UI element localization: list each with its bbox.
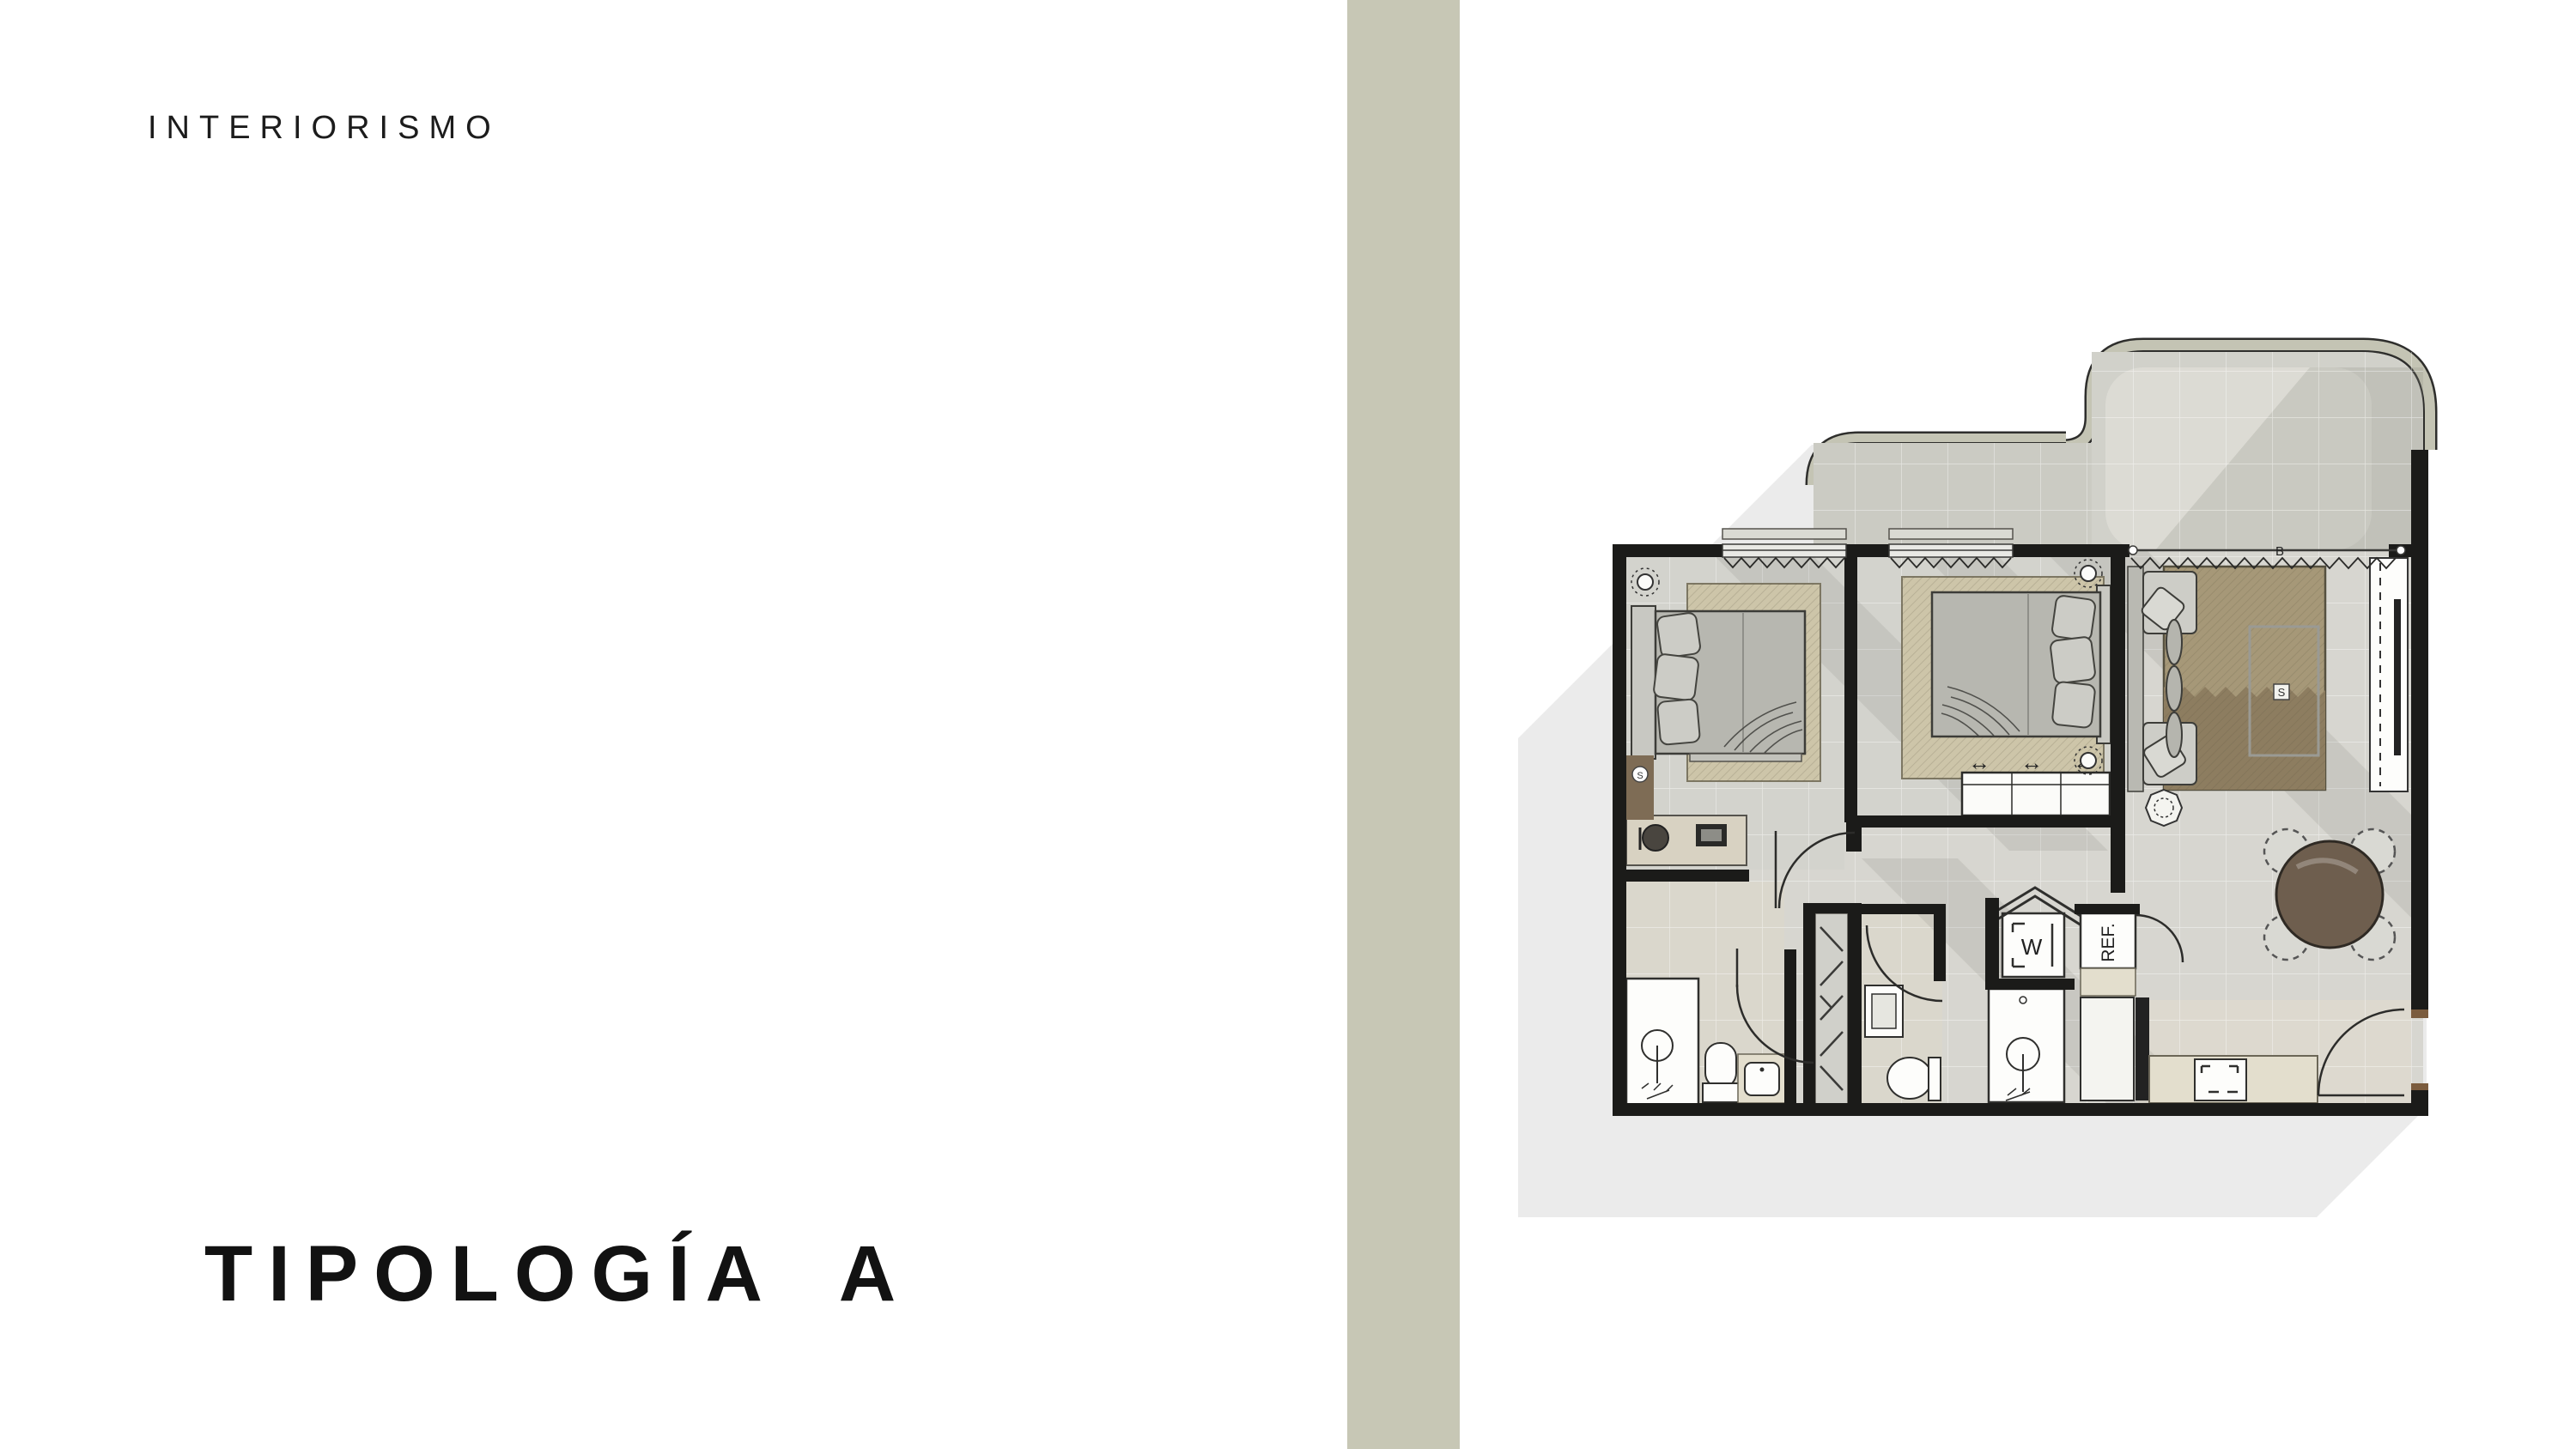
toilet-1 bbox=[1703, 1043, 1739, 1102]
eyebrow-label: INTERIORISMO bbox=[148, 110, 501, 147]
lower-cabinet bbox=[2081, 968, 2136, 996]
shower-1 bbox=[1626, 979, 1698, 1106]
vanity-1 bbox=[1738, 1054, 1786, 1103]
octagon-light bbox=[2146, 790, 2182, 826]
bed-2 bbox=[1932, 585, 2111, 743]
curtain-rod-end bbox=[2397, 546, 2405, 555]
dining-table bbox=[2276, 841, 2383, 948]
tall-cabinet bbox=[2081, 997, 2134, 1100]
shower-2 bbox=[1989, 989, 2064, 1102]
bedroom-sprinkler: S bbox=[1632, 767, 1648, 782]
kitchen-sink bbox=[2195, 1059, 2246, 1100]
toilet-2 bbox=[1887, 1058, 1941, 1100]
foot-bench bbox=[1690, 754, 1801, 761]
section-marker-label: B bbox=[2275, 544, 2284, 559]
tv-icon bbox=[2394, 599, 2401, 755]
sliding-arrow-icon: ↔ bbox=[1968, 749, 1990, 775]
desk bbox=[1626, 815, 1747, 865]
page-title: TIPOLOGÍA A bbox=[204, 1229, 911, 1319]
window-sill bbox=[1722, 529, 1846, 539]
linen-closet bbox=[1815, 913, 1848, 1109]
office-chair bbox=[1643, 825, 1668, 851]
rug-sprinkler-label: S bbox=[2278, 686, 2286, 699]
side-tables bbox=[2166, 620, 2182, 757]
sliding-arrow-icon: ↔ bbox=[2020, 749, 2043, 775]
wood-floor-accent bbox=[1626, 755, 1654, 820]
tv-console bbox=[2370, 558, 2408, 791]
floorplan-container: S bbox=[1460, 0, 2576, 1449]
pillows bbox=[1653, 612, 1701, 745]
floorplan-graphic: S bbox=[1460, 0, 2576, 1449]
washer-label: W bbox=[2021, 934, 2043, 960]
presentation-slide: INTERIORISMO TIPOLOGÍA A bbox=[0, 0, 2576, 1449]
dining-set bbox=[2264, 829, 2395, 960]
fridge-label: REF. bbox=[2099, 923, 2118, 962]
svg-text:S: S bbox=[1637, 771, 1643, 781]
bed-1 bbox=[1631, 606, 1805, 761]
window-sill bbox=[1889, 529, 2013, 539]
headboard bbox=[1631, 606, 1656, 759]
pillows bbox=[2050, 595, 2096, 728]
curtain-rod-end bbox=[2129, 546, 2137, 555]
vertical-divider-stripe bbox=[1347, 0, 1460, 1449]
